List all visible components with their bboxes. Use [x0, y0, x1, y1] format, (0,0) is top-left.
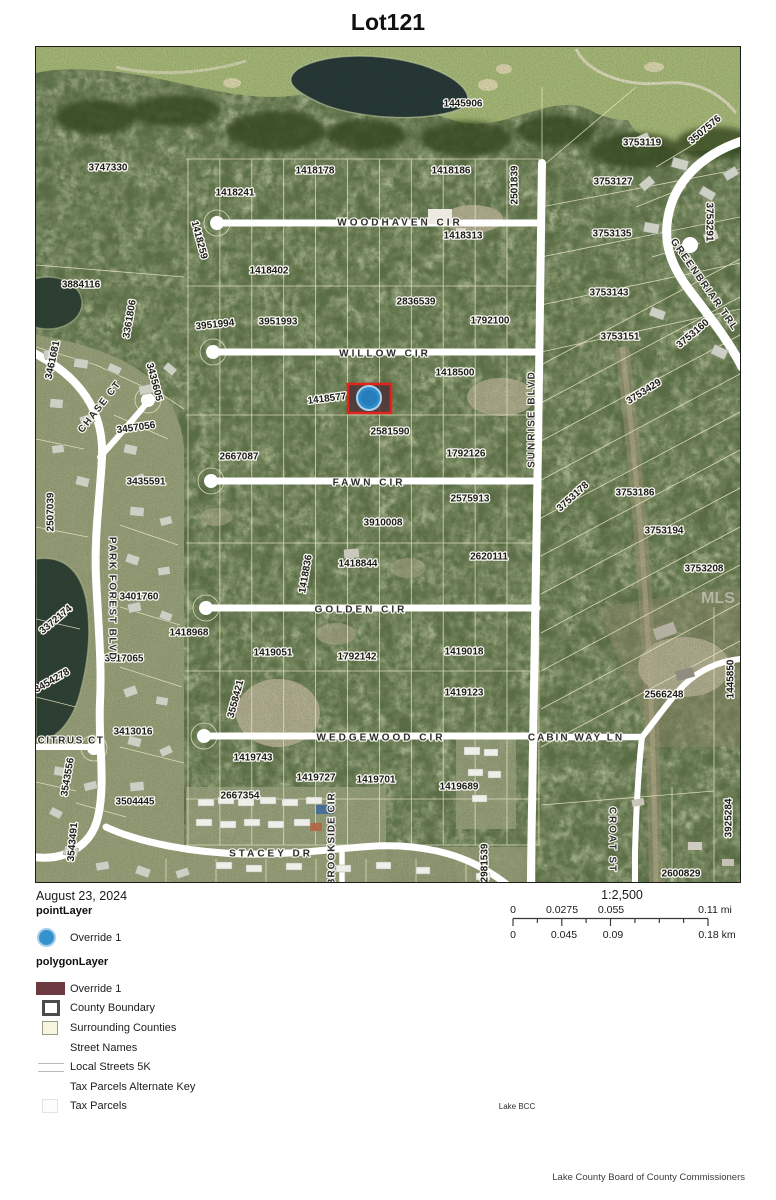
parcel-label: 3435591	[127, 477, 166, 488]
parcel-label: 2566248	[645, 690, 684, 701]
legend-item: Override 1	[36, 979, 356, 999]
scale-km-label: 0.18 km	[698, 929, 735, 941]
street-label: FAWN CIR	[333, 478, 406, 489]
mls-watermark: MLS	[701, 590, 735, 607]
parcel-label: 1445906	[444, 99, 483, 110]
legend-swatch-county	[42, 1000, 60, 1016]
parcel-label: 2667354	[221, 791, 260, 802]
street-label: WEDGEWOOD CIR	[317, 733, 446, 744]
legend-item-label: Local Streets 5K	[70, 1061, 151, 1073]
parcel-label: 2620111	[470, 552, 508, 563]
parcel-label: 2981539	[480, 843, 491, 882]
parcel-label: 2575913	[451, 494, 490, 505]
legend-item-label: County Boundary	[70, 1002, 155, 1014]
street-label: CROAT ST	[607, 807, 618, 873]
legend-swatch-maroon	[36, 982, 65, 995]
scale-ratio: 1:2,500	[560, 888, 684, 902]
street-label: SUNRISE BLVD	[527, 370, 538, 468]
legend-item: Surrounding Counties	[36, 1018, 356, 1038]
parcel-label: 1419123	[445, 688, 484, 699]
parcel-label: 3753135	[593, 229, 632, 240]
legend-item: Tax Parcels	[36, 1097, 356, 1117]
street-label: GOLDEN CIR	[315, 605, 408, 616]
parcel-label: 3504445	[116, 797, 155, 808]
parcel-label: 2507039	[46, 492, 57, 531]
legend-item: County Boundary	[36, 999, 356, 1019]
scale-km-label: 0.09	[603, 929, 623, 941]
parcel-label: 1418500	[436, 368, 475, 379]
parcel-label: 1445850	[726, 659, 737, 698]
parcel-label: 3753194	[645, 526, 684, 537]
scale-mi-label: 0.11 mi	[698, 904, 732, 916]
legend-swatch-surrounding	[42, 1021, 58, 1035]
parcel-label: 1418241	[216, 188, 255, 199]
parcel-label: 1792142	[338, 652, 377, 663]
parcel-label: 1418844	[339, 559, 378, 570]
scale-mi-label: 0.055	[598, 904, 624, 916]
parcel-label: 2667087	[220, 452, 259, 463]
parcel-label: 3753143	[590, 288, 629, 299]
parcel-label: 1418402	[250, 266, 289, 277]
scale-mi-label: 0.0275	[546, 904, 578, 916]
legend-item: Local Streets 5K	[36, 1057, 356, 1077]
legend-item: Override 1	[36, 928, 356, 947]
legend-swatch-point	[37, 928, 56, 947]
parcel-label: 3753186	[616, 488, 655, 499]
street-label: CABIN WAY LN	[528, 733, 624, 744]
parcel-label: 1419701	[357, 775, 396, 786]
footer-attribution: Lake County Board of County Commissioner…	[552, 1172, 745, 1183]
street-label: WOODHAVEN CIR	[337, 218, 462, 229]
legend-item-label: Tax Parcels	[70, 1100, 127, 1112]
legend-item: Tax Parcels Alternate Key	[36, 1077, 356, 1097]
parcel-label: 1418178	[296, 166, 335, 177]
page-title: Lot121	[0, 9, 776, 36]
parcel-label: 1419743	[234, 753, 273, 764]
parcel-label: 2581590	[371, 427, 410, 438]
parcel-label: 1419727	[297, 773, 336, 784]
parcel-label: 1418313	[444, 231, 483, 242]
parcel-label: 1419018	[445, 647, 484, 658]
scale-km-label: 0	[510, 929, 516, 941]
parcel-label: 1419051	[254, 648, 293, 659]
legend-item-label: Override 1	[70, 932, 121, 944]
map-attribution-small: Lake BCC	[499, 1102, 535, 1111]
legend-item-label: Street Names	[70, 1042, 137, 1054]
legend: pointLayer Override 1 polygonLayer Overr…	[36, 905, 356, 1116]
parcel-label: 3401760	[120, 592, 159, 603]
scale-km-label: 0.045	[551, 929, 577, 941]
legend-item: Street Names	[36, 1038, 356, 1058]
parcel-label: 3753127	[594, 177, 633, 188]
parcel-label: 1792100	[471, 316, 510, 327]
street-label: CITRUS CT	[38, 736, 105, 747]
parcel-label: 3753208	[685, 564, 724, 575]
parcel-label: 3747330	[89, 163, 128, 174]
parcel-label: 3884116	[62, 280, 101, 291]
street-label: STACEY DR	[229, 849, 313, 860]
scale-mi-label: 0	[510, 904, 516, 916]
parcel-label: 3925284	[724, 798, 735, 837]
legend-item-label: Tax Parcels Alternate Key	[70, 1081, 195, 1093]
legend-swatch-doubleline	[38, 1063, 64, 1072]
parcel-label: 3753151	[601, 332, 640, 343]
scale-bar	[508, 917, 714, 928]
legend-item-label: Override 1	[70, 983, 121, 995]
grain-overlay	[36, 47, 740, 882]
legend-swatch-faint	[42, 1099, 58, 1113]
legend-item-label: Surrounding Counties	[70, 1022, 176, 1034]
legend-polygon-header: polygonLayer	[36, 956, 356, 970]
parcel-label: 1418186	[432, 166, 471, 177]
parcel-label: 3910008	[364, 518, 403, 529]
map-date: August 23, 2024	[36, 889, 127, 903]
parcel-label: 1418968	[170, 628, 209, 639]
street-label: BROOKSIDE CIR	[327, 792, 338, 882]
legend-point-header: pointLayer	[36, 905, 356, 919]
street-label: PARK FOREST BLVD	[107, 537, 118, 661]
parcel-label: 3951993	[259, 317, 298, 328]
parcel-label: 2501839	[510, 165, 521, 204]
point-marker	[357, 386, 381, 410]
aerial-map: 3747330141817814182411418259141840238841…	[36, 47, 740, 882]
legend-point-items: Override 1	[36, 928, 356, 947]
map-container: 3747330141817814182411418259141840238841…	[35, 46, 741, 883]
parcel-label: 1792126	[447, 449, 486, 460]
parcel-label: 2600829	[662, 869, 701, 880]
street-label: WILLOW CIR	[339, 349, 431, 360]
map-export-page: Lot121	[0, 0, 776, 1200]
parcel-label: 3753119	[623, 138, 662, 149]
legend-polygon-items: Override 1County BoundarySurrounding Cou…	[36, 979, 356, 1116]
parcel-label: 3753291	[704, 203, 715, 242]
parcel-label: 1419689	[440, 782, 479, 793]
parcel-label: 3413016	[114, 727, 153, 738]
parcel-label: 2836539	[397, 297, 436, 308]
